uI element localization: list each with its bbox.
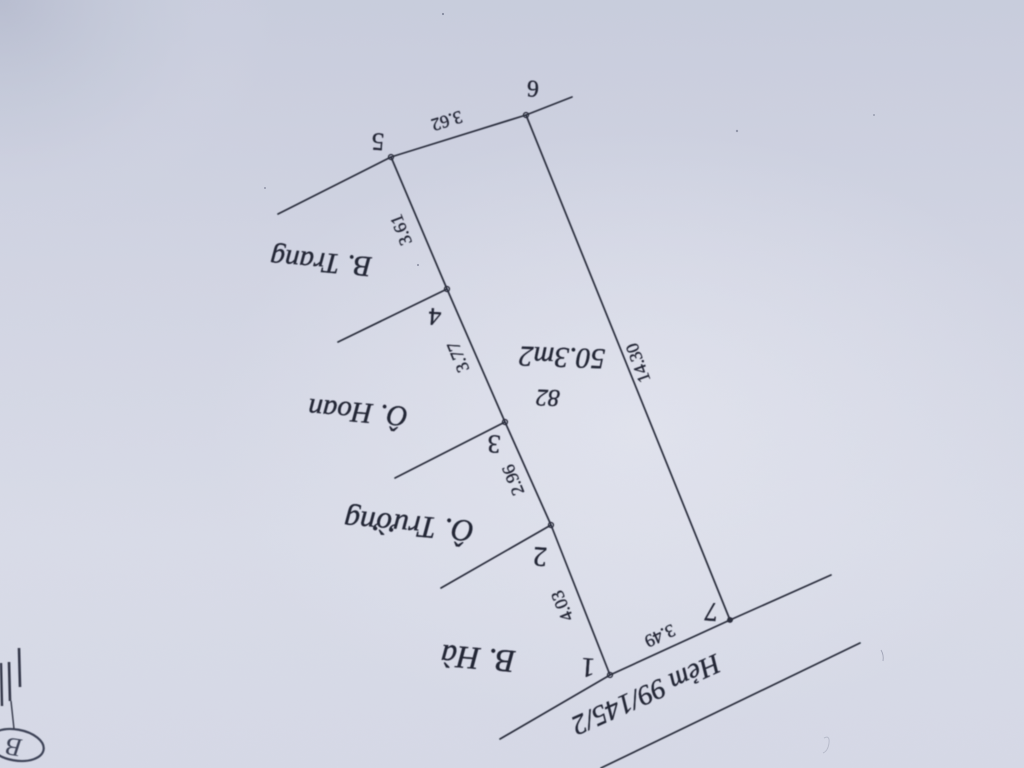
- svg-text:3: 3: [487, 429, 502, 459]
- svg-text:4: 4: [427, 302, 442, 330]
- svg-text:1: 1: [580, 651, 596, 683]
- svg-text:5: 5: [371, 127, 385, 155]
- svg-text:2: 2: [532, 540, 548, 572]
- svg-text:50.3m2: 50.3m2: [518, 340, 605, 375]
- svg-text:B. Hà: B. Hà: [439, 638, 517, 680]
- svg-text:6: 6: [526, 75, 540, 102]
- svg-text:82: 82: [536, 384, 561, 411]
- svg-text:7: 7: [703, 597, 719, 628]
